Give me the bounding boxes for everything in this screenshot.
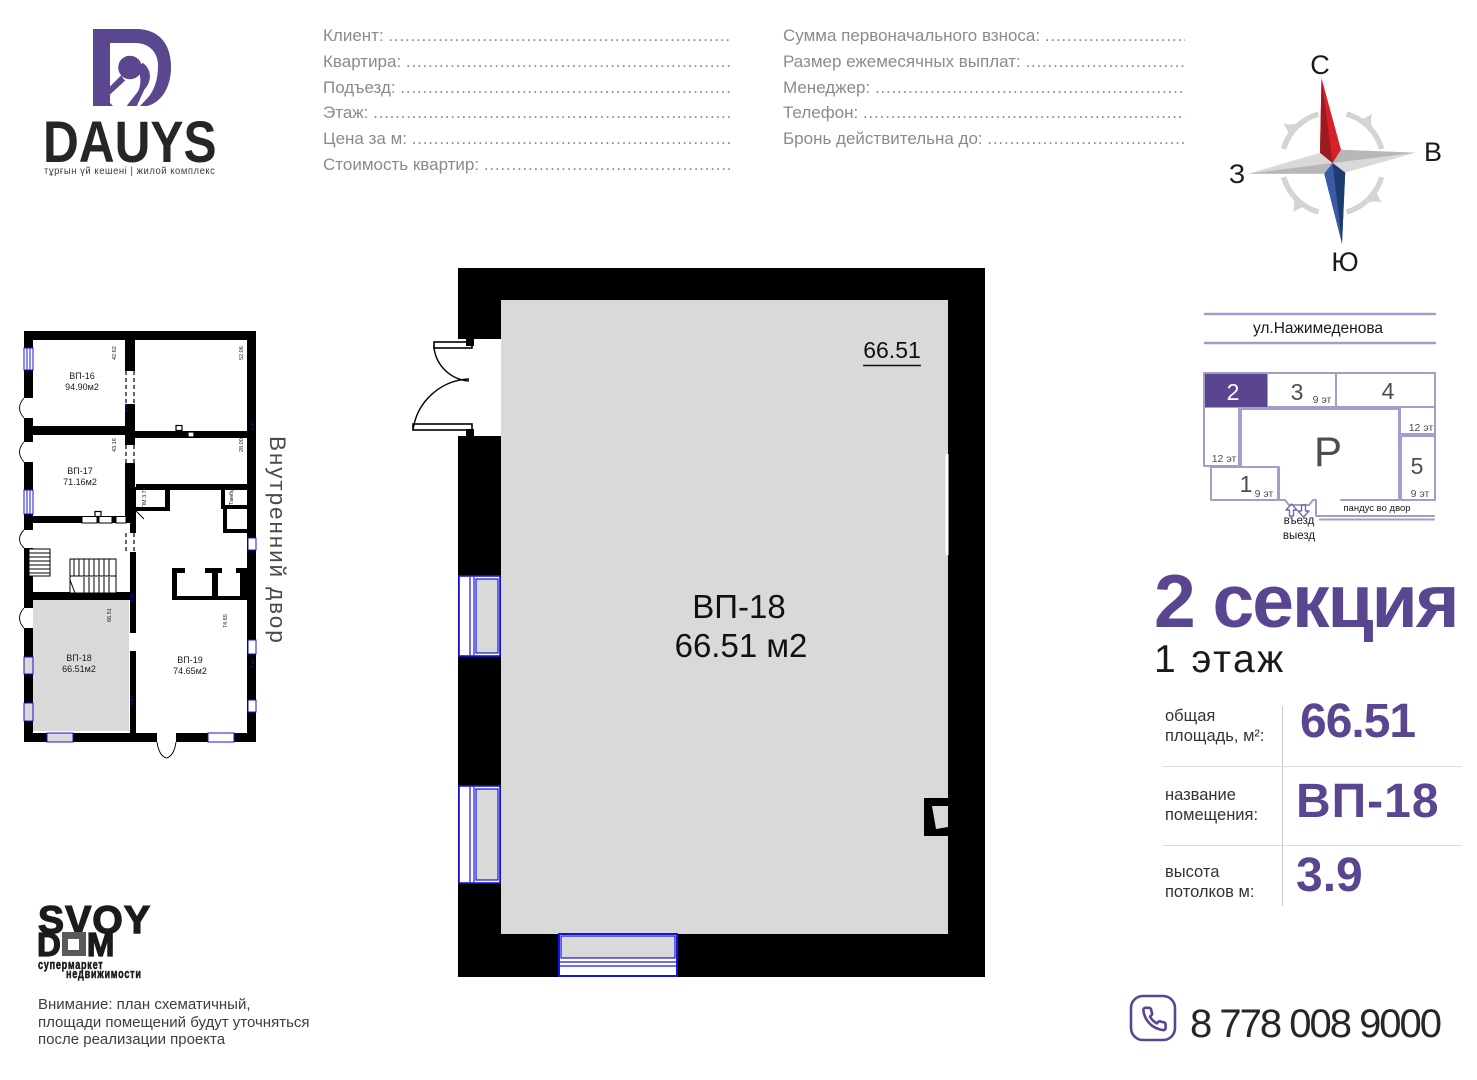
svg-text:Ю: Ю [1331,247,1358,277]
svg-text:ВП-18: ВП-18 [66,653,91,663]
svg-text:въезд: въезд [1284,515,1315,527]
svg-text:ВП-19: ВП-19 [177,655,202,665]
svg-text:5: 5 [1411,453,1424,479]
svg-text:66.51: 66.51 [863,337,921,363]
svg-text:ВП-17: ВП-17 [67,466,92,476]
svg-text:ПМ 3.71: ПМ 3.71 [142,487,148,508]
svg-text:66.51: 66.51 [107,608,113,622]
svg-text:P: P [1314,428,1342,475]
svg-text:ВП-16: ВП-16 [69,371,94,381]
svg-text:З: З [1229,159,1245,189]
svg-text:1: 1 [1240,471,1253,497]
svg-text:74.65м2: 74.65м2 [173,666,207,676]
svg-text:28.00: 28.00 [239,438,245,452]
svg-text:3.60: 3.60 [129,593,134,602]
svg-text:71.16м2: 71.16м2 [63,477,97,487]
svg-text:ул.Нажимеденова: ул.Нажимеденова [1253,320,1383,337]
svg-text:52.06: 52.06 [239,346,245,360]
svg-text:94.90м2: 94.90м2 [65,382,99,392]
svg-text:3.60: 3.60 [129,696,134,705]
svg-text:42.62: 42.62 [112,346,118,360]
svg-text:3.60: 3.60 [250,421,255,430]
svg-text:3: 3 [1291,379,1304,405]
svg-text:С: С [1310,50,1330,80]
svg-text:74.65: 74.65 [223,614,229,628]
svg-text:9 эт: 9 эт [1411,488,1430,500]
svg-text:66.51 м2: 66.51 м2 [675,627,808,664]
svg-text:Тамбур: Тамбур [229,486,235,505]
svg-text:3.60: 3.60 [250,659,255,668]
svg-text:4: 4 [1382,378,1395,404]
svg-text:3.75: 3.75 [124,403,129,412]
svg-text:9 эт: 9 эт [1313,394,1332,406]
svg-text:43.16: 43.16 [112,438,118,452]
svg-text:2: 2 [1227,379,1240,405]
svg-text:12 эт: 12 эт [1212,453,1237,465]
svg-text:выезд: выезд [1283,530,1316,542]
svg-text:пандус во двор: пандус во двор [1343,503,1410,514]
svg-text:ВП-18: ВП-18 [692,588,785,625]
svg-text:9 эт: 9 эт [1255,488,1274,500]
svg-text:66.51м2: 66.51м2 [62,664,96,674]
svg-text:В: В [1424,137,1442,167]
svg-text:12 эт: 12 эт [1409,422,1434,434]
